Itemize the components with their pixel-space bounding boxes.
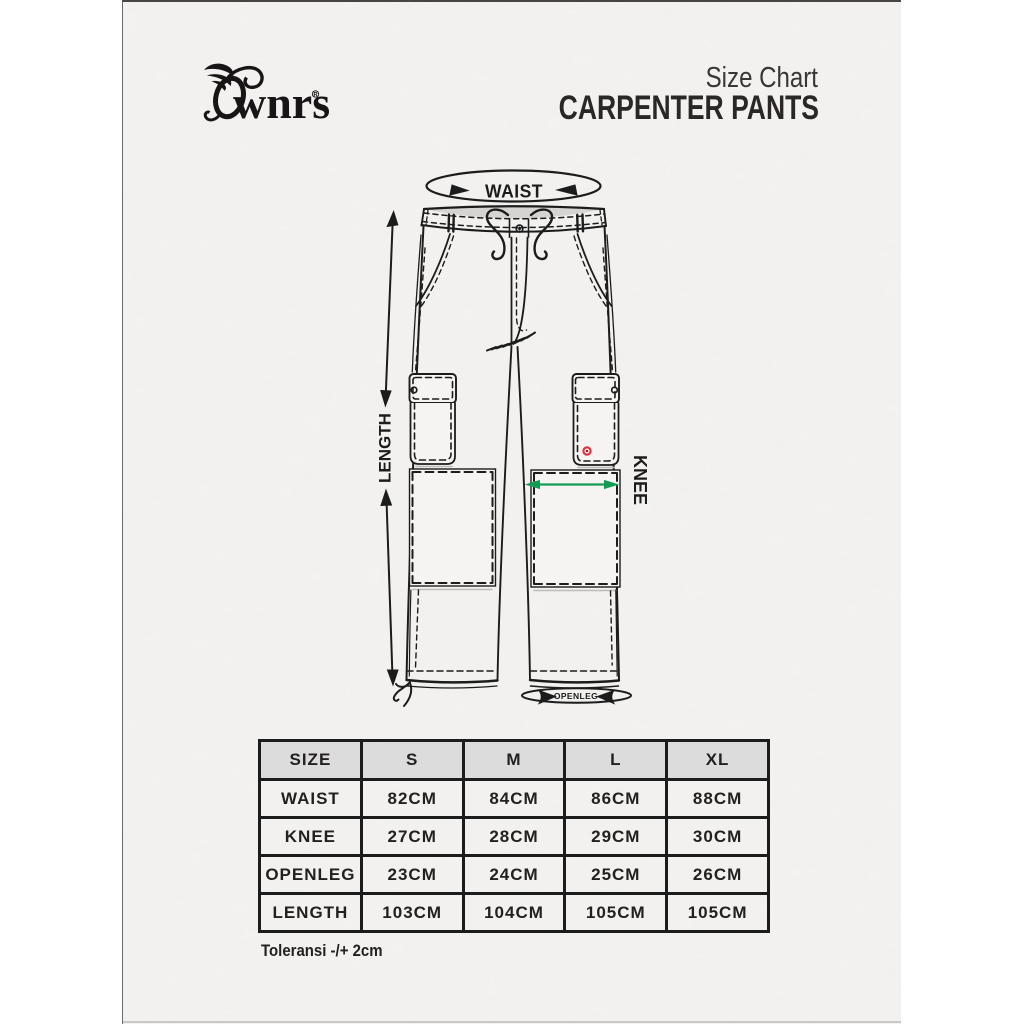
svg-text:LENGTH: LENGTH [376,413,395,483]
svg-text:OPENLEG: OPENLEG [554,691,598,701]
svg-text:KNEE: KNEE [630,455,650,505]
svg-text:WAIST: WAIST [485,181,543,202]
